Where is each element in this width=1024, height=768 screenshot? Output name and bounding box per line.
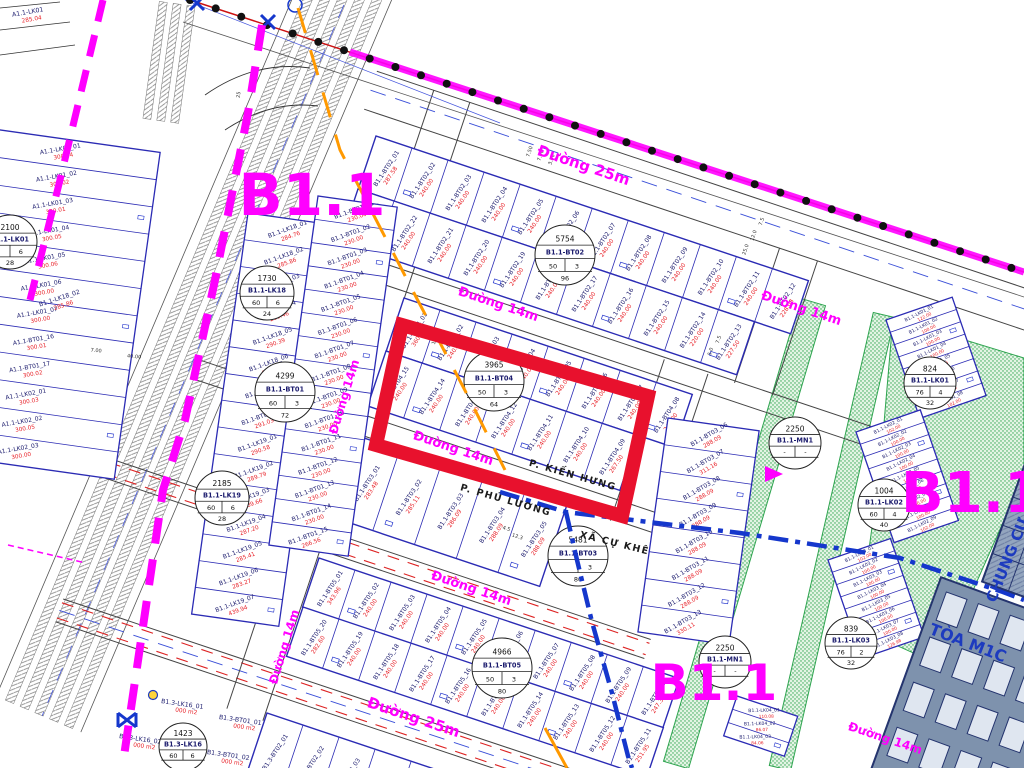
svg-text:6: 6 — [231, 504, 235, 512]
svg-text:2: 2 — [859, 649, 863, 657]
svg-text:B1.1-LK19: B1.1-LK19 — [203, 491, 241, 499]
svg-text:4966: 4966 — [492, 648, 511, 657]
svg-text:72: 72 — [281, 412, 289, 420]
block-id-circle-2250: 2250B1.1-MN1-- — [769, 417, 821, 469]
dimension-label: 40.00 — [127, 353, 142, 360]
svg-text:2100: 2100 — [0, 223, 19, 232]
svg-text:84.06: 84.06 — [751, 740, 764, 746]
svg-text:B1.1-BT04: B1.1-BT04 — [475, 374, 514, 382]
svg-text:1730: 1730 — [257, 274, 276, 283]
svg-text:3: 3 — [512, 676, 516, 684]
svg-text:32: 32 — [926, 399, 934, 407]
svg-text:6: 6 — [276, 299, 280, 307]
svg-text:4: 4 — [938, 389, 942, 397]
svg-text:60: 60 — [169, 752, 177, 760]
zone-label: B1.1 — [239, 161, 386, 229]
svg-text:76: 76 — [915, 389, 923, 397]
block-id-circle-839: 839B1.1-LK0376232 — [825, 617, 877, 669]
svg-text:80: 80 — [498, 688, 506, 696]
svg-text:1423: 1423 — [173, 729, 192, 738]
svg-text:60: 60 — [869, 511, 877, 519]
svg-text:86.07: 86.07 — [756, 727, 769, 733]
svg-text:A1.1-LK01: A1.1-LK01 — [0, 235, 29, 243]
block-id-circle-824: 824B1.1-LK0176432 — [904, 357, 956, 409]
dimension-label: 7.00 — [90, 348, 102, 355]
svg-text:50: 50 — [486, 676, 494, 684]
svg-text:5754: 5754 — [555, 235, 574, 244]
cadastral-map[interactable]: B1.1-BT02_01287.58B1.1-BT02_02240.00B1.1… — [0, 0, 1024, 768]
svg-text:B1.1-BT02: B1.1-BT02 — [546, 248, 585, 256]
svg-text:110.08: 110.08 — [759, 714, 774, 720]
zone-label: B1.1 — [651, 654, 778, 712]
svg-text:B1.1-BT01: B1.1-BT01 — [266, 385, 305, 393]
svg-text:B1.1-MN1: B1.1-MN1 — [777, 436, 814, 444]
svg-text:B1.1-LK01: B1.1-LK01 — [911, 376, 949, 384]
svg-text:B1.1-LK04_02: B1.1-LK04_02 — [744, 721, 776, 728]
yellow-point-marker — [149, 691, 158, 700]
dimension-label: 25 — [236, 91, 243, 98]
svg-text:60: 60 — [207, 504, 215, 512]
svg-text:60: 60 — [252, 299, 260, 307]
svg-text:1004: 1004 — [874, 486, 893, 495]
svg-text:6: 6 — [191, 752, 195, 760]
zone-label: B1.1 — [901, 461, 1024, 526]
svg-text:B1.1-LK18: B1.1-LK18 — [248, 286, 286, 294]
svg-text:3: 3 — [588, 564, 592, 572]
svg-text:3: 3 — [504, 389, 508, 397]
svg-text:B1.1-BT05: B1.1-BT05 — [483, 661, 522, 669]
svg-text:28: 28 — [6, 259, 14, 267]
svg-text:6: 6 — [19, 248, 23, 256]
svg-text:B1.3-LK16: B1.3-LK16 — [164, 741, 202, 749]
svg-text:4: 4 — [892, 511, 896, 519]
svg-text:50: 50 — [549, 263, 557, 271]
cadastral-map-viewport[interactable]: B1.1-BT02_01287.58B1.1-BT02_02240.00B1.1… — [0, 0, 1024, 768]
svg-text:76: 76 — [836, 649, 844, 657]
block-id-circle-5754: 5754B1.1-BT0250396 — [535, 225, 595, 285]
svg-text:24: 24 — [263, 310, 271, 318]
svg-text:B1.1-LK03: B1.1-LK03 — [832, 636, 870, 644]
svg-text:50: 50 — [478, 389, 486, 397]
svg-text:32: 32 — [847, 659, 855, 667]
svg-text:3: 3 — [295, 400, 299, 408]
svg-text:B1.1-LK02: B1.1-LK02 — [865, 498, 903, 506]
svg-text:60: 60 — [269, 400, 277, 408]
block-id-circle-4299: 4299B1.1-BT0160372 — [255, 362, 315, 422]
block-id-circle-1730: 1730B1.1-LK1860624 — [240, 266, 294, 320]
block-id-circle-4966: 4966B1.1-BT0550380 — [472, 638, 532, 698]
svg-text:3965: 3965 — [484, 361, 503, 370]
svg-text:2250: 2250 — [715, 643, 734, 652]
svg-text:839: 839 — [844, 624, 859, 633]
svg-text:B1.1-LK04_03: B1.1-LK04_03 — [739, 734, 771, 741]
svg-text:96: 96 — [561, 275, 569, 283]
block-id-circle-1423: 1423B1.3-LK16606 — [159, 723, 207, 768]
svg-text:64: 64 — [490, 401, 498, 409]
block-id-circle-2185: 2185B1.1-LK1960628 — [195, 471, 249, 525]
svg-text:824: 824 — [923, 364, 938, 373]
svg-text:28: 28 — [218, 515, 226, 523]
svg-text:3: 3 — [575, 263, 579, 271]
svg-text:2250: 2250 — [785, 424, 804, 433]
svg-text:40: 40 — [880, 521, 888, 529]
svg-text:4299: 4299 — [275, 372, 294, 381]
svg-text:2185: 2185 — [212, 479, 231, 488]
